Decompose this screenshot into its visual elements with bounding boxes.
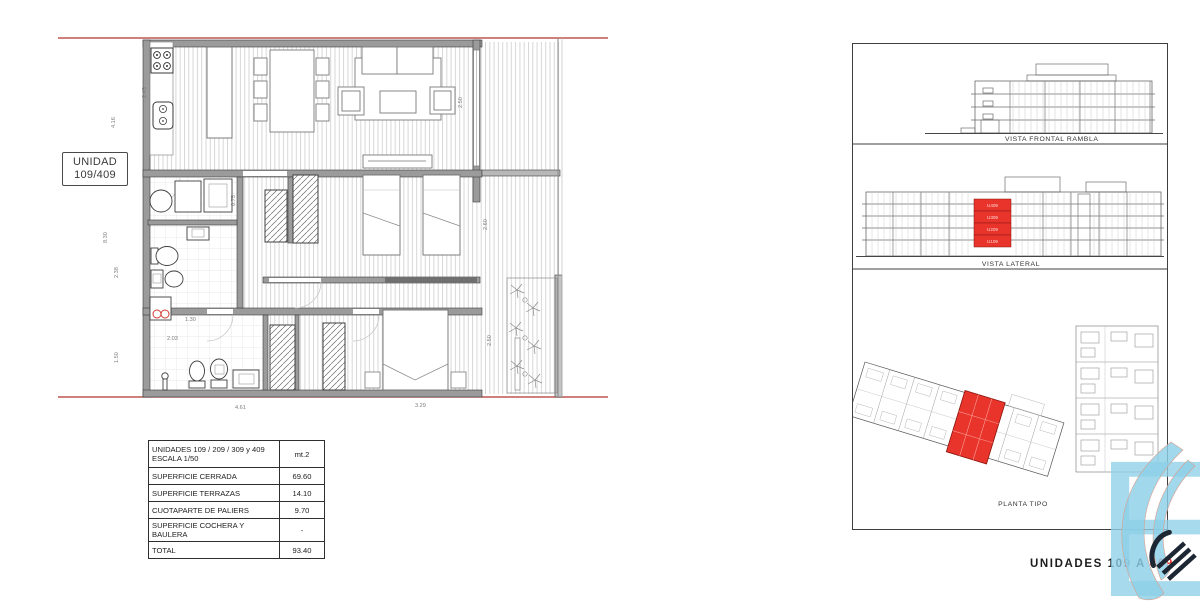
table-title-line1: UNIDADES 109 / 209 / 309 y 409 [152, 445, 276, 454]
nightstand-left [365, 372, 380, 388]
unit-tag-109: U109 [987, 239, 998, 244]
dim-bath-3: 0.75 [231, 195, 237, 206]
dim-kitchen: 2.45 [142, 87, 148, 98]
double-bed [383, 310, 448, 390]
frontal-elevation [925, 64, 1163, 134]
stove-icon [151, 48, 173, 73]
areas-table: UNIDADES 109 / 209 / 309 y 409 ESCALA 1/… [148, 440, 325, 559]
row-label: SUPERFICIE CERRADA [149, 468, 280, 485]
table-row: SUPERFICIE CERRADA 69.60 [149, 468, 325, 485]
unit-tag-309: U309 [987, 215, 998, 220]
shower-head-icon [162, 373, 168, 379]
shower-tray [175, 181, 201, 212]
table-title-line2: ESCALA 1/50 [152, 454, 276, 463]
dim-right-1: 2.50 [458, 97, 464, 108]
table-row: UNIDADES 109 / 209 / 309 y 409 ESCALA 1/… [149, 441, 325, 468]
closet-4 [270, 325, 295, 390]
table-row: SUPERFICIE TERRAZAS 14.10 [149, 485, 325, 502]
unit-tag-409: U409 [987, 203, 998, 208]
row-label: TOTAL [149, 542, 280, 559]
row-value: 69.60 [280, 468, 325, 485]
row-label: SUPERFICIE TERRAZAS [149, 485, 280, 502]
row-value: - [280, 519, 325, 542]
dim-bottom-1: 4.61 [235, 405, 246, 411]
closet-2 [293, 175, 318, 243]
dim-bottom-2: 3.29 [415, 403, 426, 409]
row-value: 93.40 [280, 542, 325, 559]
row-value: 14.10 [280, 485, 325, 502]
planta-tipo-label: PLANTA TIPO [998, 501, 1048, 508]
dim-right-3: 2.50 [487, 335, 493, 346]
dining-area [254, 50, 329, 132]
coffee-table [380, 91, 416, 113]
kitchen-island [207, 47, 232, 138]
table-row: SUPERFICIE COCHERA Y BAULERA - [149, 519, 325, 542]
table-row: TOTAL 93.40 [149, 542, 325, 559]
row-label: SUPERFICIE COCHERA Y BAULERA [149, 519, 280, 542]
dim-bath-2: 2.03 [167, 336, 178, 342]
toilet2-icon [211, 359, 228, 388]
dim-right-2: 2.60 [483, 219, 489, 230]
plan-sheet: { "unit_box": { "line1": "UNIDAD", "line… [0, 0, 1200, 603]
floor-plan: 4.16 8.30 2.38 1.50 2.45 4.61 3.29 2.50 … [55, 28, 615, 423]
closet-1 [265, 190, 287, 242]
dim-bath-1: 1.30 [185, 317, 196, 323]
row-label: CUOTAPARTE DE PALIERS [149, 502, 280, 519]
dim-left-1: 4.16 [111, 117, 117, 128]
toilet-icon [151, 247, 178, 266]
closet-3 [323, 323, 345, 390]
highlighted-unit-stack: U409 U309 U209 U109 [974, 199, 1011, 247]
nightstand-right [451, 372, 466, 388]
bidet2-icon [189, 361, 205, 388]
dim-left-4: 1.50 [114, 352, 120, 363]
lateral-elevation-label: VISTA LATERAL [982, 261, 1040, 268]
dim-left-2: 8.30 [103, 232, 109, 243]
tv-console [363, 155, 432, 168]
table-row: CUOTAPARTE DE PALIERS 9.70 [149, 502, 325, 519]
dining-table [270, 50, 314, 132]
sink-icon [153, 102, 173, 129]
unit-tag-209: U209 [987, 227, 998, 232]
dim-left-3: 2.38 [114, 267, 120, 278]
laundry-icon [150, 297, 171, 320]
company-logo: E [1093, 428, 1200, 608]
table-unit-header: mt.2 [280, 441, 325, 468]
frontal-elevation-label: VISTA FRONTAL RAMBLA [1005, 136, 1098, 143]
row-value: 9.70 [280, 502, 325, 519]
washbasin-round-icon [150, 190, 172, 212]
